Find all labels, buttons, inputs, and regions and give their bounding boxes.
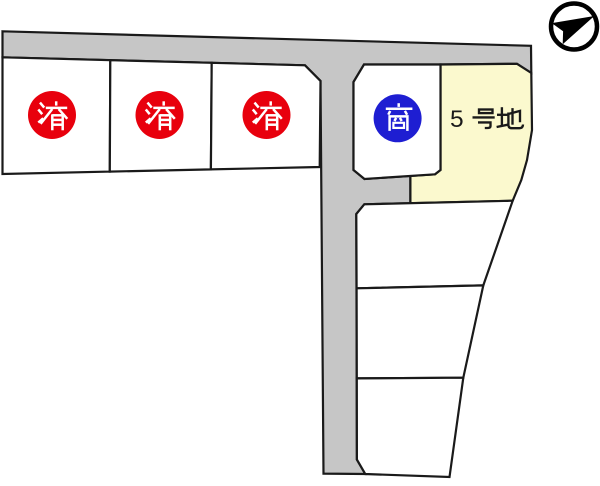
svg-text:5: 5 <box>450 106 464 133</box>
